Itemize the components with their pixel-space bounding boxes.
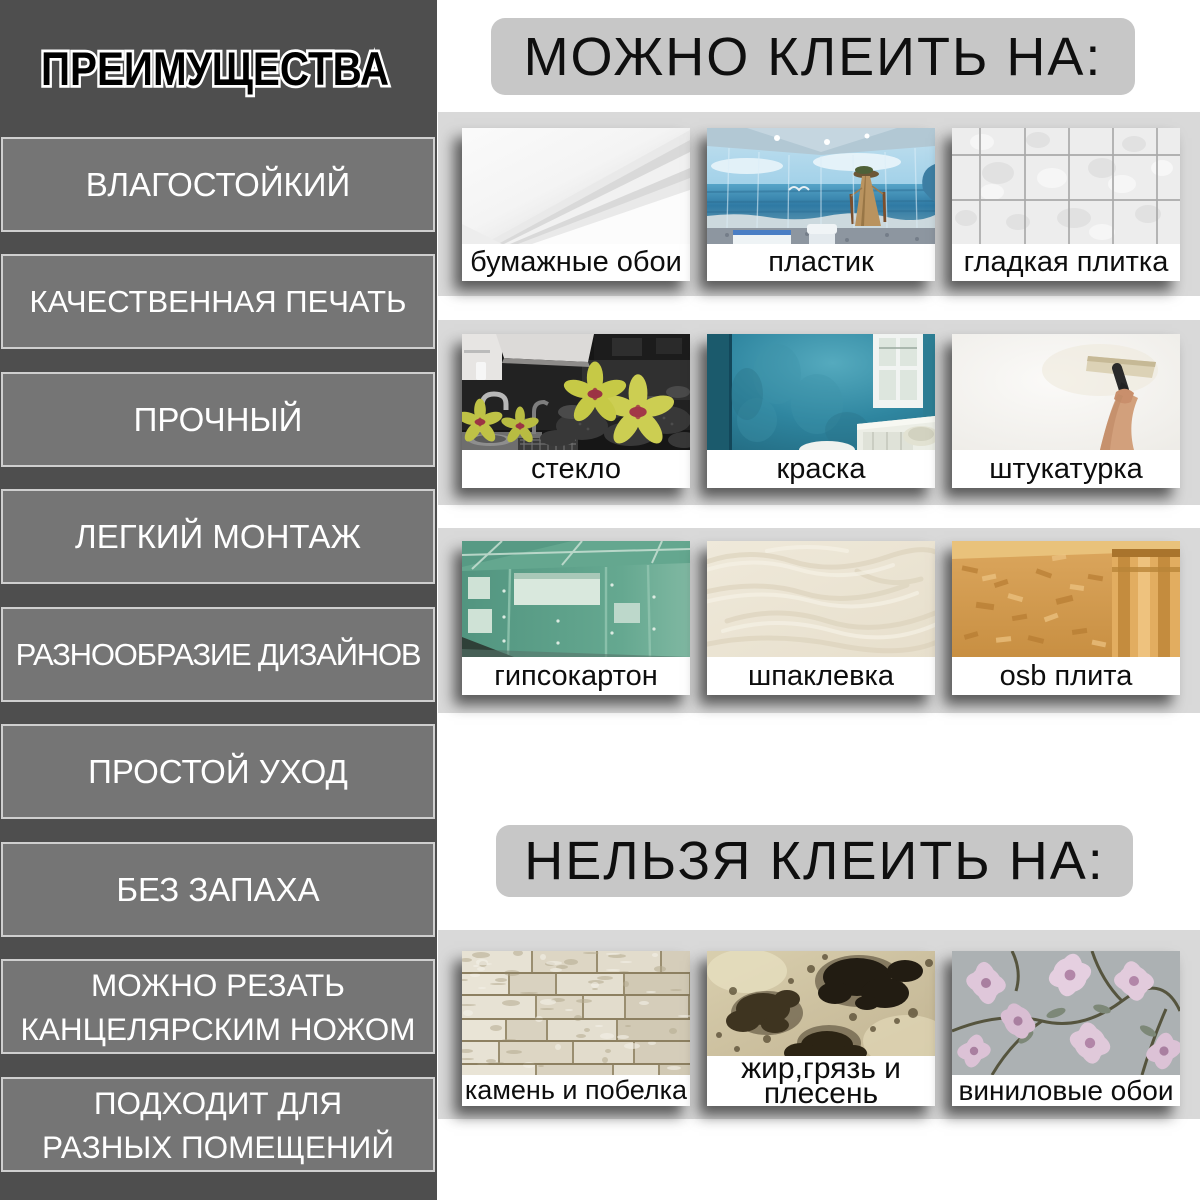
svg-text:ПРЕИМУЩЕСТВА: ПРЕИМУЩЕСТВА xyxy=(41,42,389,95)
